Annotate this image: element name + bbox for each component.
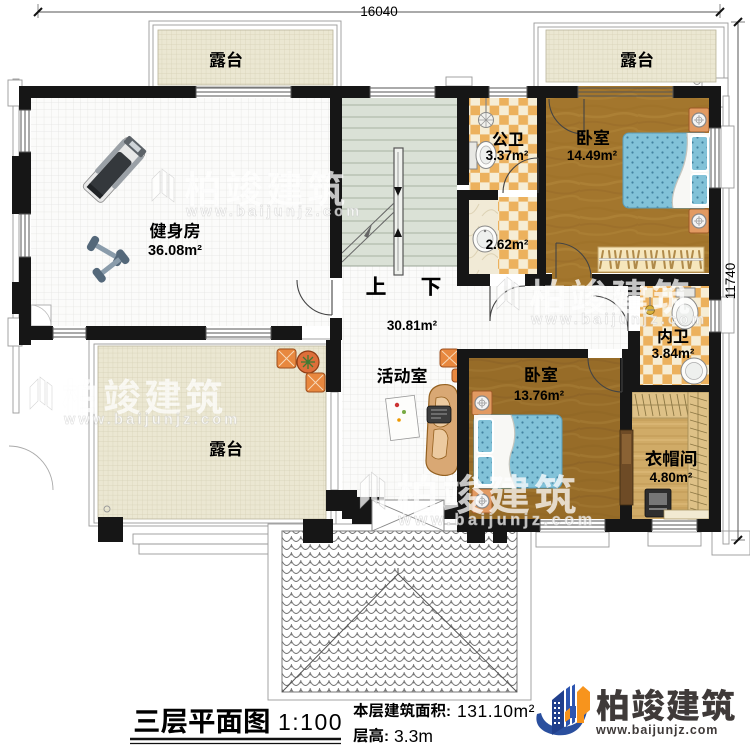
svg-text:2.62m²: 2.62m² [486, 237, 529, 252]
svg-text:3.37m²: 3.37m² [486, 148, 529, 163]
svg-text:3.3m: 3.3m [394, 726, 433, 746]
svg-text:36.08m²: 36.08m² [148, 243, 202, 259]
svg-text:4.80m²: 4.80m² [650, 470, 693, 485]
svg-text:30.81m²: 30.81m² [387, 318, 438, 333]
svg-text:13.76m²: 13.76m² [514, 388, 565, 403]
svg-text:www.baijunjz.com: www.baijunjz.com [595, 723, 718, 737]
svg-text::: : [384, 728, 389, 745]
svg-text:16040: 16040 [360, 4, 398, 19]
svg-text:14.49m²: 14.49m² [567, 148, 618, 163]
svg-text:131.10m²: 131.10m² [457, 701, 535, 721]
svg-text:3.84m²: 3.84m² [652, 346, 695, 361]
svg-text:11740: 11740 [723, 263, 738, 300]
svg-text::: : [446, 703, 451, 720]
svg-text:1:100: 1:100 [278, 709, 343, 735]
